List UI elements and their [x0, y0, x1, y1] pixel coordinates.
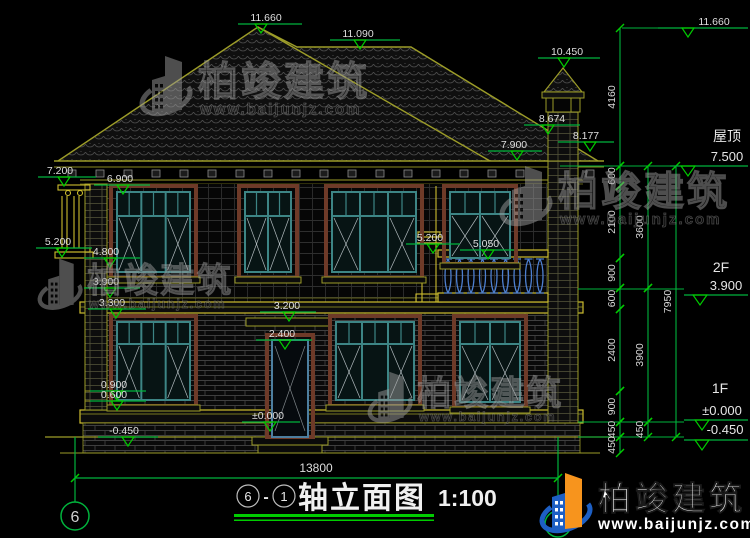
dimension-value: 3900: [634, 343, 646, 367]
cad-elevation-drawing: 11.66011.66011.09010.4508.6748.1777.9007…: [0, 0, 750, 538]
watermark-brand: 柏竣建筑: [558, 170, 730, 214]
elevation-value: 2.400: [269, 328, 295, 340]
watermark-brand: 柏竣建筑: [198, 60, 370, 104]
bottom-dimension-value: 13800: [299, 461, 333, 475]
eave-rafters: [68, 170, 594, 177]
floor-label: -0.450: [684, 422, 748, 450]
dimension-segment: 450: [634, 418, 652, 441]
dimension-value: 900: [606, 264, 618, 282]
window-sill: [107, 405, 200, 411]
elevation-marker: 11.660: [658, 16, 748, 37]
dimension-value: 450: [606, 436, 618, 454]
floor-label: 屋顶: [713, 128, 741, 144]
window: [440, 186, 520, 269]
elevation-value: 7.200: [47, 165, 73, 177]
window: [322, 186, 426, 283]
window: [326, 316, 424, 411]
elevation-value: 3.200: [274, 300, 300, 312]
elevation-marker: 7.200: [38, 165, 96, 186]
floor-label: 2F: [713, 259, 729, 275]
elevation-value: 5.200: [417, 232, 443, 244]
dimension-segment: 450: [606, 433, 624, 457]
title-separator: -: [263, 489, 268, 506]
brand-logo: 柏竣建筑www.baijunjz.com: [538, 473, 750, 537]
elevation-value: 5.050: [473, 238, 499, 250]
watermark: 柏竣建筑www.baijunjz.com: [366, 372, 563, 426]
watermark: 柏竣建筑www.baijunjz.com: [498, 166, 730, 230]
floor-label-text: 2F: [713, 259, 729, 275]
dimension-value: 7950: [662, 290, 674, 314]
elevation-value: 6.900: [107, 173, 133, 185]
floor-label-text: 1F: [712, 380, 728, 396]
dimension-value: 4160: [606, 85, 618, 109]
watermark: 柏竣建筑www.baijunjz.com: [36, 259, 233, 313]
dimension-value: 450: [634, 421, 646, 439]
watermark-url: www.baijunjz.com: [88, 296, 226, 311]
drawing-title: 轴立面图: [298, 481, 426, 515]
floor-label-text: 7.500: [711, 149, 744, 164]
axis-bubble-left-number: 6: [71, 509, 80, 526]
elevation-value: 0.600: [101, 389, 127, 401]
elevation-value: ±0.000: [252, 410, 284, 422]
logo: 柏竣建筑www.baijunjz.com: [538, 473, 750, 537]
dimension-segment: 4160: [606, 24, 624, 170]
elevation-value: 5.200: [45, 236, 71, 248]
watermark-brand: 柏竣建筑: [417, 374, 563, 413]
watermark: 柏竣建筑www.baijunjz.com: [138, 56, 370, 120]
window-sill: [235, 277, 301, 283]
elevation-value: 10.450: [551, 46, 583, 58]
elevation-value: 7.900: [501, 139, 527, 151]
dimension-segment: 2400: [606, 305, 624, 395]
title-block: 6 - 1 轴立面图 1:100: [234, 481, 497, 521]
floor-label-text: 3.900: [710, 278, 743, 293]
watermark-url: www.baijunjz.com: [199, 101, 361, 118]
elevation-value: 8.674: [539, 113, 565, 125]
logo-url: www.baijunjz.com: [597, 516, 750, 533]
watermark-brand: 柏竣建筑: [87, 261, 233, 300]
window: [235, 186, 301, 283]
elevation-value: 4.800: [93, 246, 119, 258]
floor-label-text: 屋顶: [713, 128, 741, 144]
floor-label: 3.900: [684, 278, 748, 305]
title-axis-to: 1: [280, 489, 287, 504]
elevation-marker: 10.450: [538, 46, 600, 67]
title-axis-from: 6: [244, 489, 251, 504]
dimension-segment: 3900: [634, 284, 652, 426]
elevation-value: 8.177: [573, 130, 599, 142]
dimension-chains: 4160600210090060024009004504503600390045…: [606, 24, 680, 457]
dimension-value: 900: [606, 398, 618, 416]
floor-label-text: ±0.000: [702, 403, 742, 418]
elevation-marker: 11.660: [238, 12, 302, 33]
dimension-value: 600: [606, 290, 618, 308]
elevation-value: -0.450: [109, 425, 139, 437]
dimension-value: 450: [606, 421, 618, 439]
balcony-bottom-rail: [438, 293, 548, 302]
dimension-value: 2400: [606, 338, 618, 362]
floor-label: 1F: [712, 380, 728, 396]
logo-brand: 柏竣建筑: [598, 480, 746, 517]
bottom-dimension: 13800: [71, 461, 562, 482]
window-sill: [440, 263, 520, 269]
watermark-url: www.baijunjz.com: [418, 409, 556, 424]
entry-step: [252, 437, 328, 453]
drawing-surface: 11.66011.66011.09010.4508.6748.1777.9007…: [0, 0, 750, 538]
floor-label-text: -0.450: [707, 422, 744, 437]
elevation-marker: 5.200: [36, 236, 92, 257]
elevation-value: 11.090: [342, 28, 373, 40]
footing: [83, 423, 580, 453]
window-sill: [322, 277, 426, 283]
watermark-url: www.baijunjz.com: [559, 211, 721, 228]
elevation-value: 11.660: [250, 12, 281, 24]
drawing-scale: 1:100: [438, 485, 497, 511]
elevation-marker: 11.090: [330, 28, 400, 49]
elevation-value: 11.660: [698, 16, 729, 28]
